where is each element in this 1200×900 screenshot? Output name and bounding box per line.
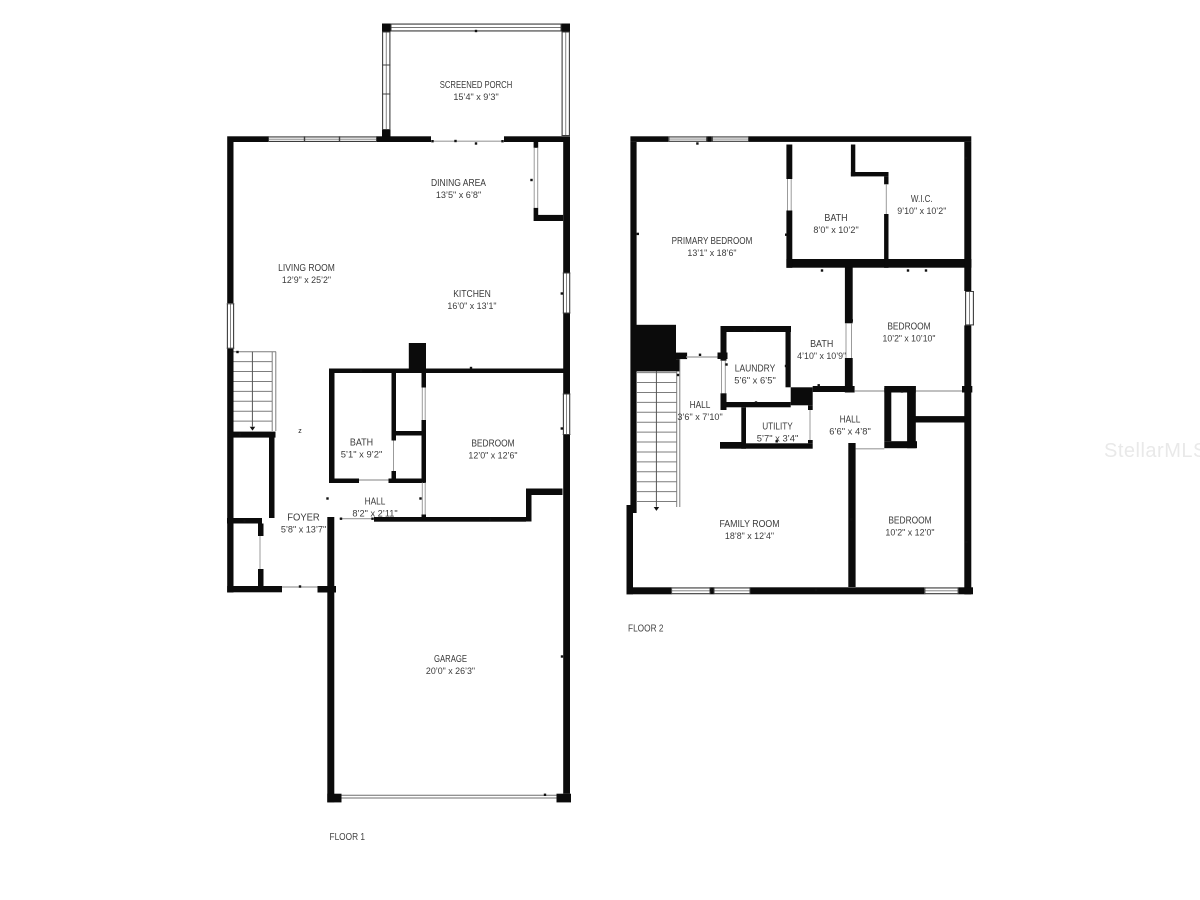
svg-text:LAUNDRY: LAUNDRY xyxy=(735,364,776,375)
svg-text:W.I.C.: W.I.C. xyxy=(911,194,933,205)
svg-text:12’9" x 25’2": 12’9" x 25’2" xyxy=(282,275,331,285)
svg-text:BATH: BATH xyxy=(810,339,833,350)
svg-text:BATH: BATH xyxy=(350,438,373,449)
svg-text:GARAGE: GARAGE xyxy=(434,654,467,665)
svg-text:BATH: BATH xyxy=(824,213,847,224)
svg-text:FOYER: FOYER xyxy=(287,513,320,524)
svg-text:15’4" x 9’3": 15’4" x 9’3" xyxy=(453,92,498,102)
svg-text:9’10" x 10’2": 9’10" x 10’2" xyxy=(897,206,946,216)
svg-text:StellarMLS: StellarMLS xyxy=(1104,440,1200,462)
svg-text:12’0" x 12’6": 12’0" x 12’6" xyxy=(468,451,517,461)
svg-text:SCREENED PORCH: SCREENED PORCH xyxy=(440,80,513,91)
svg-text:6’6" x 4’8": 6’6" x 4’8" xyxy=(829,427,871,437)
svg-text:20’0" x 26’3": 20’0" x 26’3" xyxy=(426,666,475,676)
svg-text:8’0" x 10’2": 8’0" x 10’2" xyxy=(813,225,858,235)
svg-text:5’1" x 9’2": 5’1" x 9’2" xyxy=(341,450,383,460)
svg-text:5’6" x 6’5": 5’6" x 6’5" xyxy=(734,376,776,386)
svg-text:FLOOR 1: FLOOR 1 xyxy=(330,832,366,843)
svg-text:18’8" x 12’4": 18’8" x 12’4" xyxy=(725,531,774,541)
svg-text:FAMILY ROOM: FAMILY ROOM xyxy=(719,519,779,530)
svg-text:BEDROOM: BEDROOM xyxy=(471,439,514,450)
svg-text:3’6" x 7’10": 3’6" x 7’10" xyxy=(677,412,722,422)
svg-text:BEDROOM: BEDROOM xyxy=(888,516,931,527)
svg-text:FLOOR 2: FLOOR 2 xyxy=(628,624,664,635)
svg-text:z: z xyxy=(298,428,302,435)
svg-text:13’5" x 6’8": 13’5" x 6’8" xyxy=(436,190,481,200)
svg-text:16’0" x 13’1": 16’0" x 13’1" xyxy=(447,301,496,311)
svg-text:HALL: HALL xyxy=(840,415,861,426)
svg-text:5’8" x 13’7": 5’8" x 13’7" xyxy=(281,525,326,535)
svg-text:LIVING ROOM: LIVING ROOM xyxy=(278,263,335,274)
svg-text:UTILITY: UTILITY xyxy=(762,422,793,433)
svg-text:10’2" x 10’10": 10’2" x 10’10" xyxy=(883,334,936,344)
svg-text:HALL: HALL xyxy=(690,400,711,411)
svg-text:PRIMARY BEDROOM: PRIMARY BEDROOM xyxy=(672,236,753,247)
svg-text:13’1" x 18’6": 13’1" x 18’6" xyxy=(687,248,736,258)
svg-text:KITCHEN: KITCHEN xyxy=(453,289,491,300)
svg-text:4’10" x 10’9": 4’10" x 10’9" xyxy=(797,351,846,361)
svg-text:BEDROOM: BEDROOM xyxy=(887,322,930,333)
svg-text:HALL: HALL xyxy=(365,497,386,508)
svg-text:10’2" x 12’0": 10’2" x 12’0" xyxy=(885,528,934,538)
svg-text:8’2" x 2’11": 8’2" x 2’11" xyxy=(352,509,397,519)
svg-text:DINING AREA: DINING AREA xyxy=(431,178,486,189)
